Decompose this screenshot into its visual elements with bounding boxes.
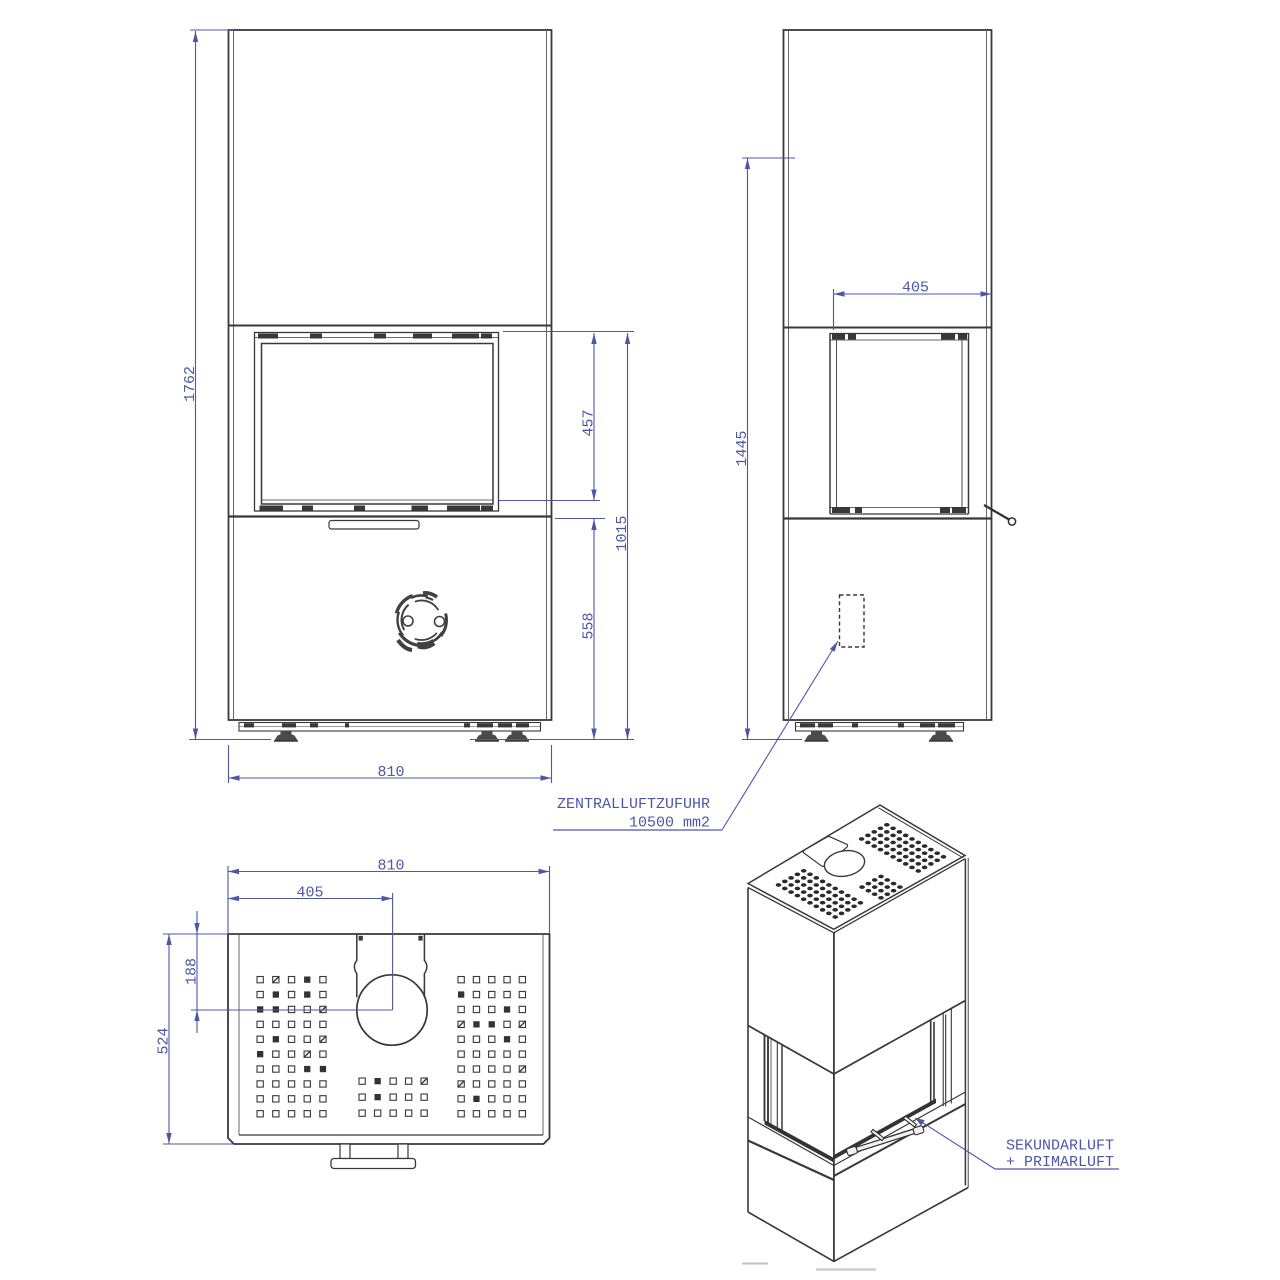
svg-text:10500 mm2: 10500 mm2 xyxy=(629,815,710,832)
svg-text:457: 457 xyxy=(581,409,598,436)
svg-text:1762: 1762 xyxy=(182,366,199,402)
svg-text:+ PRIMARLUFT: + PRIMARLUFT xyxy=(1006,1154,1114,1171)
svg-text:SEKUNDARLUFT: SEKUNDARLUFT xyxy=(1006,1138,1114,1155)
svg-text:1445: 1445 xyxy=(734,430,751,466)
svg-text:524: 524 xyxy=(156,1027,173,1054)
svg-text:ZENTRALLUFTZUFUHR: ZENTRALLUFTZUFUHR xyxy=(557,796,710,813)
svg-text:810: 810 xyxy=(377,764,404,781)
svg-text:405: 405 xyxy=(902,280,929,297)
svg-text:188: 188 xyxy=(184,958,201,985)
svg-text:810: 810 xyxy=(377,858,404,875)
svg-text:405: 405 xyxy=(296,885,323,902)
svg-text:558: 558 xyxy=(581,612,598,639)
svg-text:1015: 1015 xyxy=(614,515,631,551)
